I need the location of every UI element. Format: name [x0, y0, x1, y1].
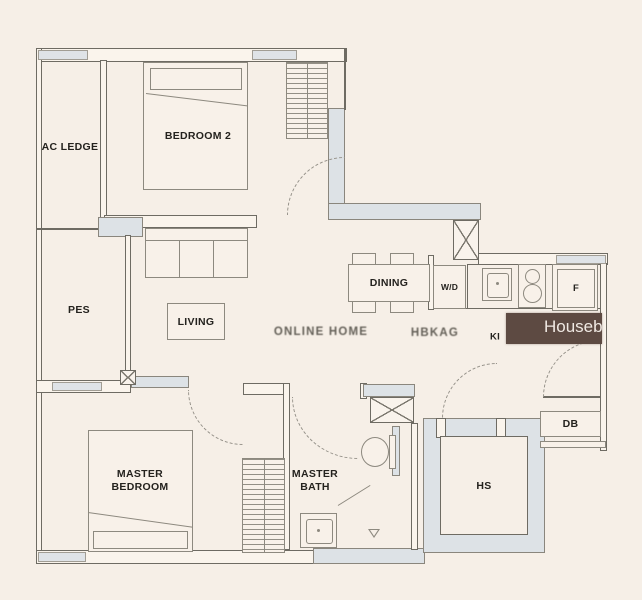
wd-label: W/D — [441, 282, 458, 292]
stove — [518, 264, 546, 308]
hs-door-jamb-left — [436, 418, 446, 438]
bath-bottom-wall — [313, 548, 425, 564]
wardrobe-divider — [307, 63, 308, 138]
hs-door-jamb-right — [496, 418, 506, 438]
dining-chair — [390, 301, 414, 313]
master-bedroom-door-arc — [188, 390, 243, 445]
db-box: DB — [540, 411, 601, 437]
master-bedroom-label: MASTER BEDROOM — [104, 468, 176, 494]
db-lower-band — [540, 441, 606, 448]
fridge-inner: F — [557, 269, 595, 308]
sofa-backrest-line — [146, 240, 247, 241]
hs-room: HS — [440, 436, 528, 535]
bath-shaft — [370, 397, 414, 423]
bath-basin — [300, 513, 337, 548]
pes-east-wall — [125, 235, 131, 377]
toilet-bowl — [361, 437, 389, 467]
bath-shaft-wall — [363, 384, 415, 397]
fridge-label: F — [573, 283, 579, 294]
bedroom2-east-wall — [344, 48, 346, 110]
bedroom2-label: BEDROOM 2 — [165, 130, 231, 142]
sofa-seat-divider — [213, 240, 214, 278]
master-bath-door-arc — [292, 397, 358, 459]
floor-plan: HS DB LIVING DINING W/D — [0, 0, 642, 600]
pes-label: PES — [68, 304, 90, 316]
living-label: LIVING — [178, 316, 215, 328]
sofa-wall-block — [98, 217, 143, 237]
brand-watermark-text: Housebe — [544, 317, 602, 337]
brand-watermark: Housebe — [506, 313, 602, 344]
bedroom2-door-arc — [287, 157, 345, 215]
ac-ledge-label: AC LEDGE — [42, 141, 99, 153]
dining-table: DINING — [348, 264, 430, 302]
master-pillow — [93, 531, 188, 549]
entrance-door-arc — [442, 363, 497, 418]
kitchen-label: KI — [490, 332, 500, 343]
fridge: F — [552, 264, 598, 311]
kitchen-door-arc — [543, 340, 600, 397]
master-bath-label: MASTER BATH — [285, 468, 345, 494]
dining-chair — [352, 301, 376, 313]
burner-icon — [523, 284, 542, 303]
hs-label: HS — [476, 480, 491, 492]
sofa-seat-divider — [179, 240, 180, 278]
burner-icon — [525, 269, 540, 284]
bath-east-wall — [411, 423, 418, 550]
top-window-right — [252, 50, 297, 60]
ac-ledge-bedroom-wall — [100, 60, 107, 218]
pes-south-window — [52, 382, 102, 391]
watermark-text-right: HBKAG — [411, 327, 459, 340]
washer-dryer: W/D — [433, 265, 466, 309]
floor-drain-icon — [368, 529, 380, 538]
db-label: DB — [563, 418, 579, 430]
living-mbr-wall — [131, 376, 189, 388]
counter-divider-line — [467, 264, 468, 308]
ac-ledge-divider — [37, 228, 101, 230]
toilet-cistern — [389, 435, 396, 469]
sofa — [145, 228, 248, 278]
kitchen-window — [556, 255, 606, 264]
wardrobe-divider — [264, 459, 265, 552]
basin-drain-icon — [317, 529, 320, 532]
master-wardrobe — [242, 458, 285, 553]
bedroom2-wardrobe — [286, 62, 328, 139]
living-table: LIVING — [167, 303, 225, 340]
left-wall — [36, 48, 42, 564]
pes-column-shaft — [120, 370, 136, 385]
bedroom2-pillow — [150, 68, 242, 90]
top-window-left — [38, 50, 88, 60]
bottom-window — [38, 552, 86, 562]
dining-label: DINING — [370, 277, 409, 289]
right-wall — [600, 263, 607, 451]
sink-drain-icon — [496, 282, 499, 285]
sink-basin — [487, 273, 509, 298]
kitchen-shaft — [453, 220, 479, 260]
kitchen-sink — [482, 268, 512, 301]
watermark-text-left: ONLINE HOME — [274, 326, 368, 339]
corridor-wall-horizontal — [328, 203, 481, 220]
